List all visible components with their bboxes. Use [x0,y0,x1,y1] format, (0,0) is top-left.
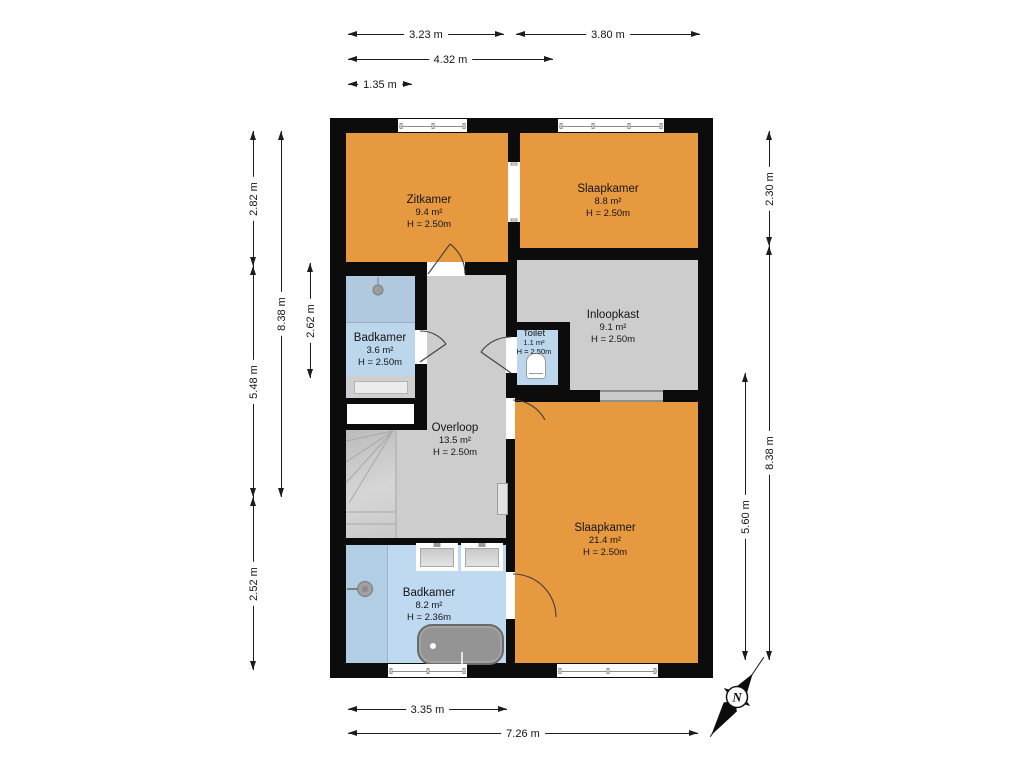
dim-left-5: 2.62 m [310,263,311,378]
label-slaapkamer-big: Slaapkamer 21.4 m² H = 2.50m [574,521,635,559]
shower-drain-icon [373,277,383,295]
label-toilet: Toilet 1.1 m² H = 2.50m [517,329,552,357]
dim-left-3: 2.52 m [253,497,254,670]
dimension-label: 3.35 m [406,704,450,716]
dimension-label: 8.38 m [276,292,288,336]
dim-bottom-1: 3.35 m [348,709,507,710]
dimension-label: 3.23 m [404,29,448,41]
dim-right-3: 5.60 m [745,373,746,660]
dimension-label: 8.38 m [764,431,776,475]
label-slaapkamer-top: Slaapkamer 8.8 m² H = 2.50m [577,182,638,220]
compass-rose: N [697,648,777,745]
dimension-label: 3.80 m [586,29,630,41]
dimension-label: 2.82 m [248,177,260,221]
dim-left-4: 8.38 m [281,131,282,497]
dim-left-1: 2.82 m [253,131,254,266]
dim-left-2: 5.48 m [253,266,254,497]
compass-north-label: N [731,690,742,705]
dimension-label: 7.26 m [501,728,545,740]
dimension-label: 4.32 m [429,54,473,66]
plan-overlay: N [0,0,1024,768]
dimension-label: 2.30 m [764,167,776,211]
dim-top-2: 3.80 m [516,34,700,35]
floorplan-canvas: N Zitkamer 9.4 m² H = 2.50m Slaapkamer 8… [0,0,1024,768]
label-overloop: Overloop 13.5 m² H = 2.50m [432,421,479,459]
dim-top-1: 3.23 m [348,34,504,35]
dim-top-4: 1.35 m [348,84,412,85]
dimension-label: 1.35 m [358,79,402,91]
label-badkamer-1: Badkamer 3.6 m² H = 2.50m [354,331,406,369]
bathtub-fittings [430,643,462,664]
dimension-label: 2.52 m [248,562,260,606]
dimension-label: 2.62 m [305,299,317,343]
dim-top-3: 4.32 m [348,59,553,60]
dimension-label: 5.60 m [740,495,752,539]
label-inloopkast: Inloopkast 9.1 m² H = 2.50m [587,308,639,346]
shower-head-icon [347,582,373,597]
dim-right-2: 8.38 m [769,246,770,660]
label-zitkamer: Zitkamer 9.4 m² H = 2.50m [407,193,452,231]
dim-bottom-2: 7.26 m [348,733,698,734]
dim-right-1: 2.30 m [769,131,770,246]
dimension-label: 5.48 m [248,360,260,404]
label-badkamer-2: Badkamer 8.2 m² H = 2.36m [403,586,455,624]
stair-treads [346,431,396,524]
